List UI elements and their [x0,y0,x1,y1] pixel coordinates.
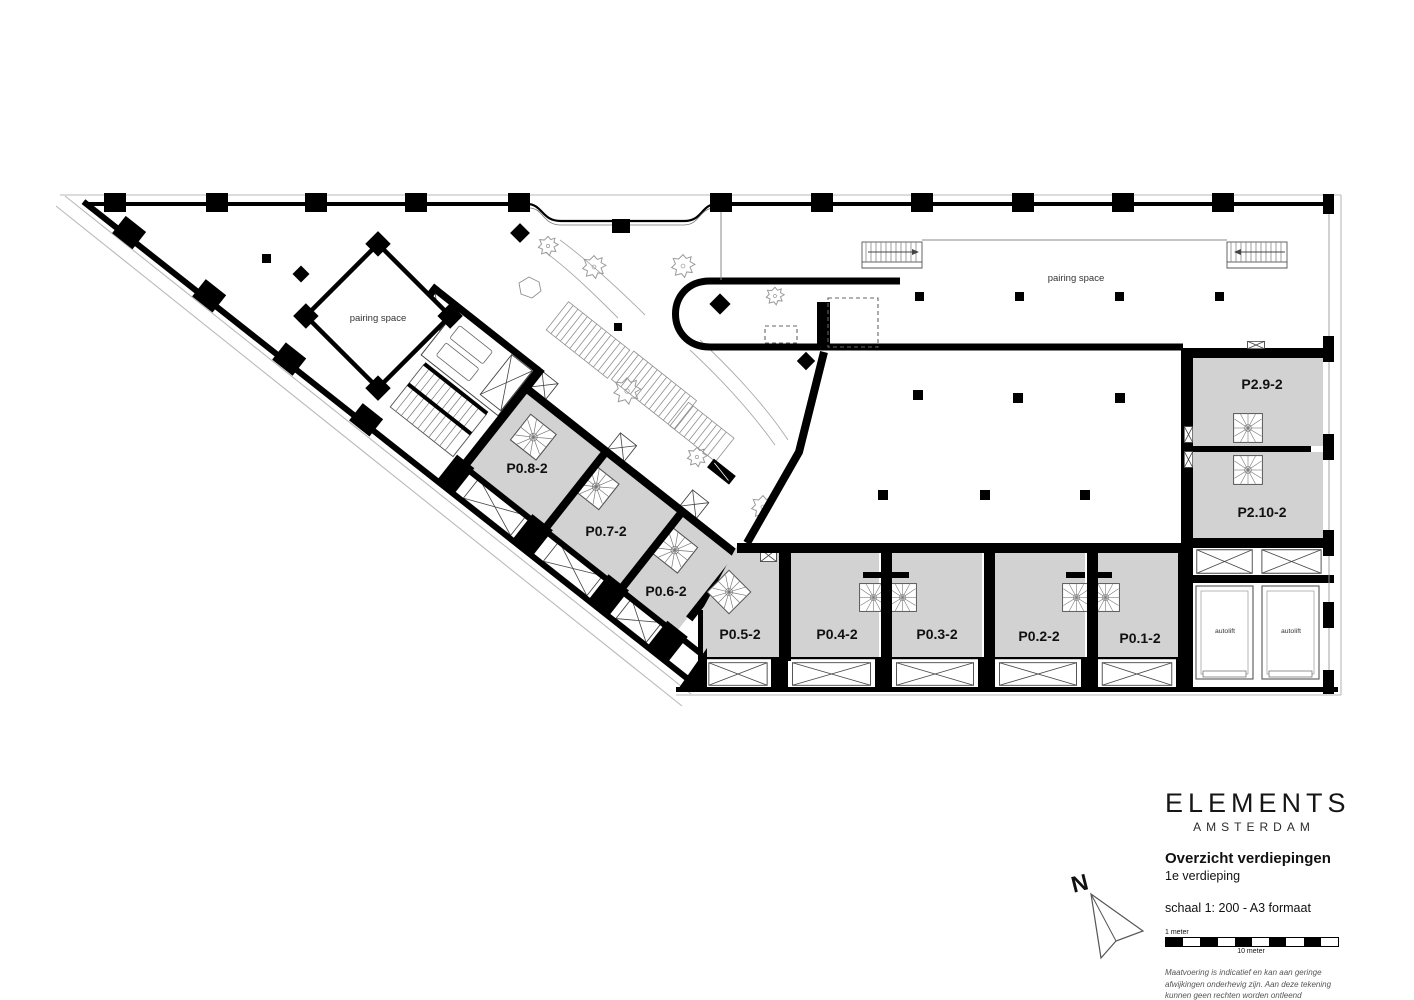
autolift-label: autolift [1281,628,1301,635]
spiral-stair-icon [889,584,917,612]
unit-label-p07-2: P0.7-2 [585,523,626,539]
autolift-block [1183,543,1334,692]
scale-note: schaal 1: 200 - A3 formaat [1165,901,1343,915]
driveway-court [676,281,1188,545]
vent-shaft-icon [1184,452,1192,468]
vent-shaft-icon [1184,427,1192,443]
autolift-label: autolift [1215,628,1235,635]
column [709,293,730,314]
vent-shaft-icon [1248,341,1265,349]
upper-hall [721,206,1287,301]
hall-columns [915,292,1224,301]
wall [1183,543,1193,692]
lift-shaft-cell [1197,550,1252,574]
disclaimer-line: Maatvoering is indicatief en kan aan ger… [1165,967,1343,979]
drawing-subtitle: 1e verdieping [1165,869,1343,883]
column [262,254,271,263]
column [293,266,310,283]
drawing-title: Overzicht verdiepingen [1165,850,1343,867]
balcony-cell [999,663,1076,686]
brand-logo: ELEMENTS [1165,788,1343,819]
column [510,223,530,243]
unit-label-p02-2: P0.2-2 [1018,628,1059,644]
rock-sketch [519,277,541,298]
unit-label-p05-2: P0.5-2 [719,626,760,642]
column [104,193,1234,233]
straight-stair [1227,242,1287,268]
diagonal-wing [79,53,806,685]
balcony-cell [792,663,870,686]
scale-bar [1165,937,1339,947]
wall [1187,575,1334,583]
spiral-stair-icon [1063,584,1091,612]
scalebar-top-label: 1 meter [1165,929,1343,936]
right-pairing-label: pairing space [1048,273,1105,284]
unit-label-p29-2: P2.9-2 [1241,376,1282,392]
north-label: N [1068,869,1090,898]
entrance-recess [527,204,717,221]
facade-pier [1323,194,1334,694]
disclaimer-line: afwijkingen onderhevig zijn. Aan deze te… [1165,979,1343,991]
balcony-cell [896,663,973,686]
scalebar-bottom-label: 10 meter [1165,948,1337,955]
unit-label-p01-2: P0.1-2 [1119,630,1160,646]
unit-label-p03-2: P0.3-2 [916,626,957,642]
winder-stair-icon [1234,456,1263,485]
title-block: ELEMENTS AMSTERDAM Overzicht verdiepinge… [1165,788,1343,1000]
garden-column [614,323,622,331]
brand-sub: AMSTERDAM [1165,820,1343,834]
balcony-cell [709,663,767,686]
unit-label-p08-2: P0.8-2 [506,460,547,476]
driveway-wall [676,281,1184,347]
winder-stair-icon [1234,414,1263,443]
disclaimer-line: kunnen geen rechten worden ontleend [1165,990,1343,1000]
unit-label-p04-2: P0.4-2 [816,626,857,642]
column [797,352,815,370]
unit-label-p210-2: P2.10-2 [1237,504,1286,520]
disclaimer: Maatvoering is indicatief en kan aan ger… [1165,967,1343,1000]
north-arrow: N [1068,869,1143,958]
straight-stair [862,242,922,268]
balcony-cell [1102,663,1172,686]
left-pairing-label: pairing space [350,313,407,324]
drawing-sheet: P0.8-2 P0.7-2 P0.6-2 P0.5-2 P0.4-2 P0.3-… [0,0,1414,1000]
unit-label-p06-2: P0.6-2 [645,583,686,599]
lift-shaft-cell [1262,550,1321,574]
